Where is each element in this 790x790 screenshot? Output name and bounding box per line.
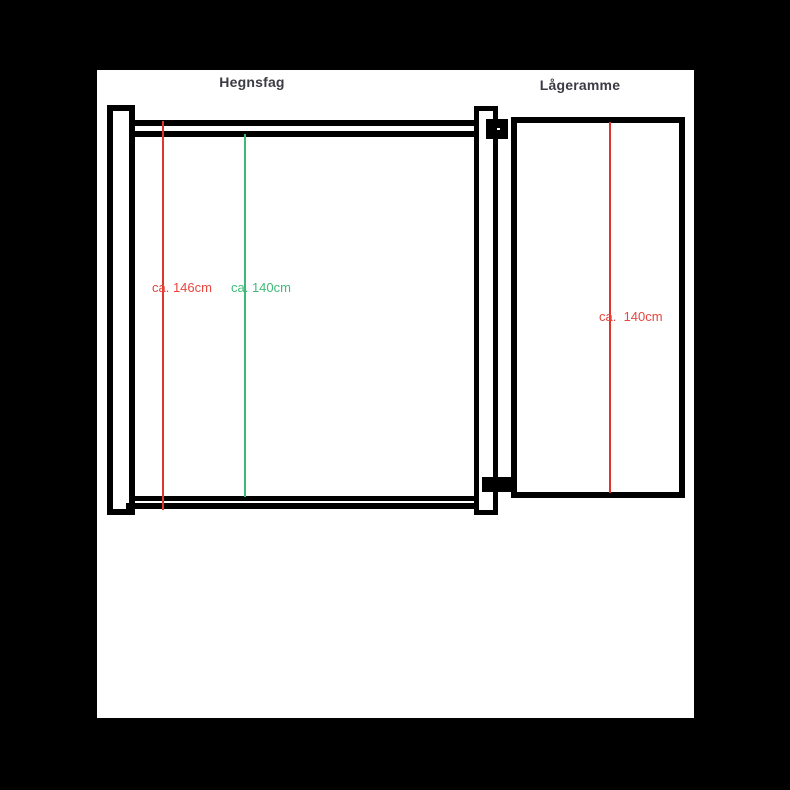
gate-frame-height-label: ca. 140cm xyxy=(599,309,663,324)
gate-top-hinge xyxy=(486,119,508,139)
fence-post-height-measure-line xyxy=(162,121,164,510)
fence-right-post xyxy=(474,106,498,515)
gate-frame-height-measure-line xyxy=(609,122,611,493)
gate-frame-outline xyxy=(511,117,685,498)
fence-top-rail-lower-edge xyxy=(135,131,476,137)
fence-bottom-rail-upper-edge xyxy=(133,496,476,501)
fence-left-post xyxy=(107,105,135,515)
diagram-background: Hegnsfag Lågeramme ca. 146cm ca. 140cm c… xyxy=(0,0,790,790)
gate-bottom-hinge xyxy=(482,477,513,492)
gate-frame-title: Lågeramme xyxy=(510,77,650,93)
fence-top-rail-upper-edge xyxy=(135,120,476,126)
fence-bottom-rail-lower-edge xyxy=(126,503,476,509)
fence-frame-height-measure-line xyxy=(244,134,246,497)
fence-post-height-label: ca. 146cm xyxy=(152,280,212,295)
gate-top-hinge-pin xyxy=(497,128,500,130)
fence-frame-height-label: ca. 140cm xyxy=(231,280,291,295)
fence-section-title: Hegnsfag xyxy=(182,74,322,90)
